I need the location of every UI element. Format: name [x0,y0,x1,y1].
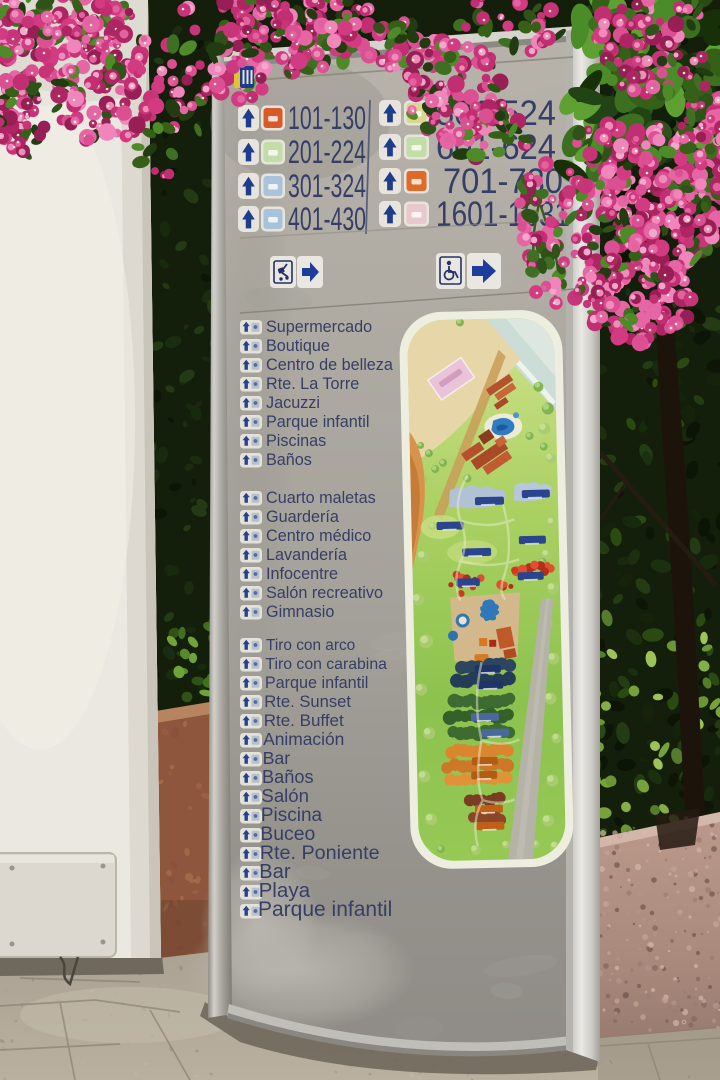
svg-text:Animación: Animación [263,729,344,749]
svg-text:Guardería: Guardería [266,508,339,526]
svg-text:101-130: 101-130 [288,100,366,136]
svg-text:Salón recreativo: Salón recreativo [266,584,383,602]
svg-text:Supermercado: Supermercado [266,318,372,336]
svg-text:Lavandería: Lavandería [266,546,347,564]
svg-text:Bar: Bar [263,748,291,768]
svg-text:Boutique: Boutique [266,337,330,355]
svg-text:Rte. La Torre: Rte. La Torre [266,375,359,393]
svg-text:Rte. Sunset: Rte. Sunset [264,692,351,711]
svg-text:301-324: 301-324 [288,168,366,204]
svg-text:Rte. Buffet: Rte. Buffet [264,711,344,730]
svg-text:Infocentre: Infocentre [266,565,338,583]
svg-text:Parque infantil: Parque infantil [258,898,392,921]
svg-text:Tiro con carabina: Tiro con carabina [265,656,387,673]
svg-text:Centro de belleza: Centro de belleza [266,356,393,374]
svg-text:Tiro con arco: Tiro con arco [266,637,355,654]
svg-text:Baños: Baños [262,767,314,787]
svg-text:Gimnasio: Gimnasio [266,603,334,621]
svg-text:Jacuzzi: Jacuzzi [266,394,320,412]
svg-text:Parque infantil: Parque infantil [265,674,369,692]
svg-text:Baños: Baños [266,451,312,469]
svg-text:Cuarto maletas: Cuarto maletas [266,489,376,507]
svg-text:Salón: Salón [261,785,309,806]
svg-text:Centro médico: Centro médico [266,527,371,545]
svg-text:Piscinas: Piscinas [266,432,326,450]
svg-text:201-224: 201-224 [288,134,366,170]
svg-text:Parque infantil: Parque infantil [266,413,370,431]
